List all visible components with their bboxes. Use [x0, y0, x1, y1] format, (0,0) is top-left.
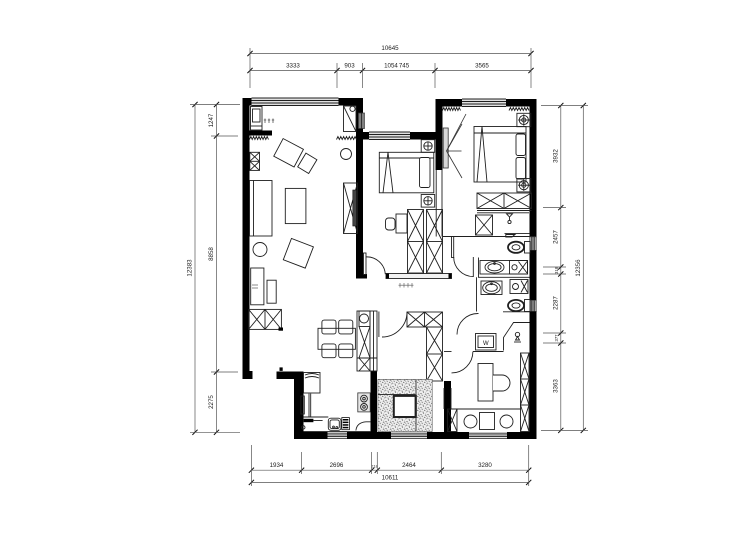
- svg-text:3565: 3565: [475, 62, 489, 69]
- svg-text:318: 318: [554, 266, 559, 274]
- svg-text:2464: 2464: [402, 462, 416, 469]
- svg-text:2287: 2287: [552, 296, 559, 310]
- svg-text:8858: 8858: [208, 247, 215, 261]
- svg-text:377: 377: [554, 334, 559, 342]
- svg-text:3333: 3333: [286, 62, 300, 69]
- svg-text:12356: 12356: [575, 259, 582, 277]
- svg-text:3280: 3280: [478, 462, 492, 469]
- svg-text:1247: 1247: [208, 113, 215, 127]
- svg-text:2696: 2696: [330, 462, 344, 469]
- svg-text:3932: 3932: [552, 149, 559, 163]
- svg-text:1054: 1054: [384, 62, 398, 69]
- svg-text:3363: 3363: [552, 379, 559, 393]
- svg-text:2275: 2275: [208, 395, 215, 409]
- svg-text:10645: 10645: [381, 45, 399, 52]
- svg-text:12383: 12383: [187, 259, 194, 277]
- svg-text:1934: 1934: [270, 462, 284, 469]
- svg-text:10611: 10611: [382, 474, 399, 481]
- svg-text:745: 745: [399, 62, 410, 69]
- svg-text:2457: 2457: [552, 230, 559, 244]
- svg-text:903: 903: [344, 62, 355, 69]
- svg-text:W: W: [483, 341, 489, 347]
